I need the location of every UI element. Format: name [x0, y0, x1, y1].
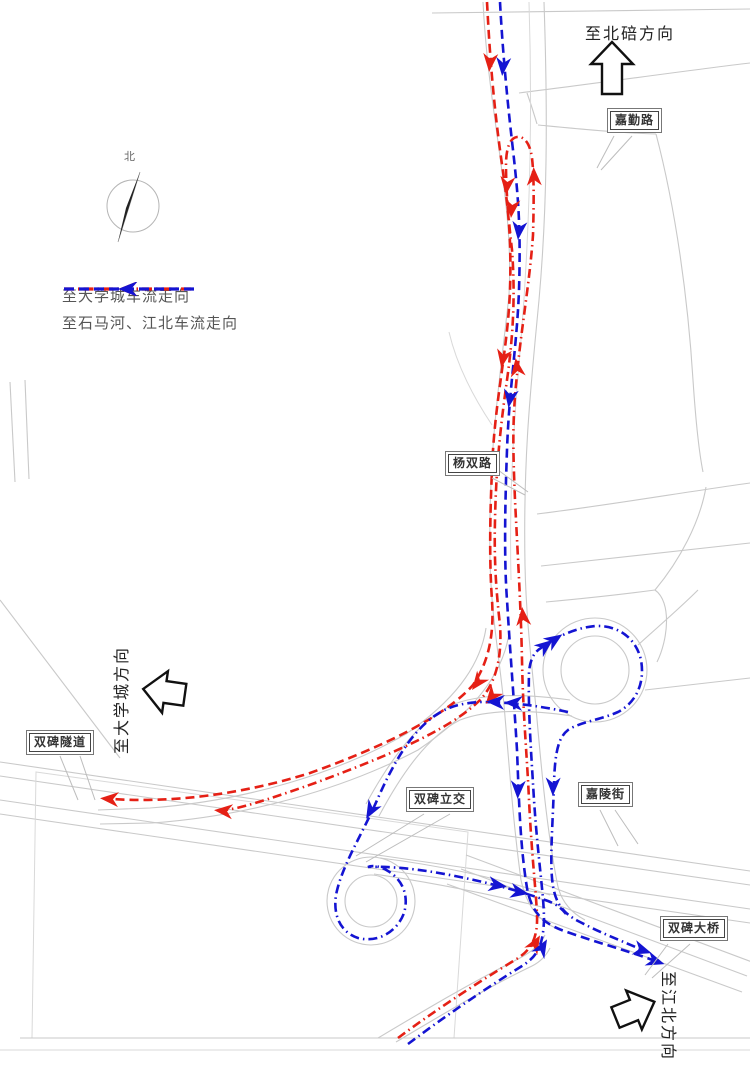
road-label-text: 杨双路 — [448, 454, 497, 473]
west-direction-arrow-icon — [140, 668, 187, 715]
blue-flow-arrowhead — [545, 777, 560, 796]
legend-label: 至石马河、江北车流走向 — [62, 312, 238, 333]
flow-arrowheads — [100, 53, 667, 971]
traffic-flow-map: 嘉勤路 杨双路 双碑隧道 双碑立交 嘉陵街 双碑大桥 至北碚方向 至大学城方向 … — [0, 0, 750, 1061]
blue-route-loop-ramp — [408, 626, 642, 1044]
callout-leaders — [60, 136, 690, 978]
road-label-text: 嘉勤路 — [610, 111, 659, 130]
road-label-shuangbei-bridge: 双碑大桥 — [660, 916, 728, 941]
blue-route-west-uturn — [335, 702, 568, 939]
road-label-text: 双碑立交 — [409, 790, 471, 809]
red-flow-arrowhead — [498, 176, 515, 196]
blue-dashed-line-icon — [62, 282, 197, 296]
blue-flow-arrowhead — [632, 940, 654, 960]
compass-north-label: 北 — [124, 148, 135, 164]
compass-north-icon — [107, 172, 159, 242]
red-route-from-north — [112, 2, 510, 800]
map-canvas — [0, 0, 750, 1061]
blue-flow-arrowhead — [510, 780, 526, 799]
direction-arrows — [140, 42, 662, 1037]
blue-route-from-north — [500, 2, 655, 961]
north-direction-sign: 至北碚方向 — [570, 20, 690, 44]
north-direction-arrow-icon — [591, 42, 633, 94]
red-flow-arrowhead — [213, 803, 233, 820]
road-label-jialing-street: 嘉陵街 — [578, 782, 633, 807]
red-flow-arrowhead — [482, 53, 499, 73]
background-roads — [0, 2, 750, 1050]
red-route-from-south-uturn — [226, 137, 537, 1038]
road-label-text: 双碑大桥 — [663, 919, 725, 938]
road-label-shuangbei-interchange: 双碑立交 — [406, 787, 474, 812]
road-label-text: 嘉陵街 — [581, 785, 630, 804]
blue-flow-arrowhead — [510, 221, 527, 241]
legend-item-shimahe-jiangbei: 至石马河、江北车流走向 — [62, 309, 238, 336]
road-label-text: 双碑隧道 — [29, 733, 91, 752]
southeast-direction-sign: 至江北方向 — [658, 961, 682, 1071]
road-label-shuangbei-tunnel: 双碑隧道 — [26, 730, 94, 755]
southeast-direction-arrow-icon — [608, 982, 663, 1037]
legend: 至大学城车流走向 至石马河、江北车流走向 — [62, 282, 238, 336]
road-label-jiaqin-road: 嘉勤路 — [607, 108, 662, 133]
red-flow-arrowhead — [515, 606, 532, 626]
road-label-yangshuang-road: 杨双路 — [445, 451, 500, 476]
west-direction-sign: 至大学城方向 — [108, 635, 132, 765]
